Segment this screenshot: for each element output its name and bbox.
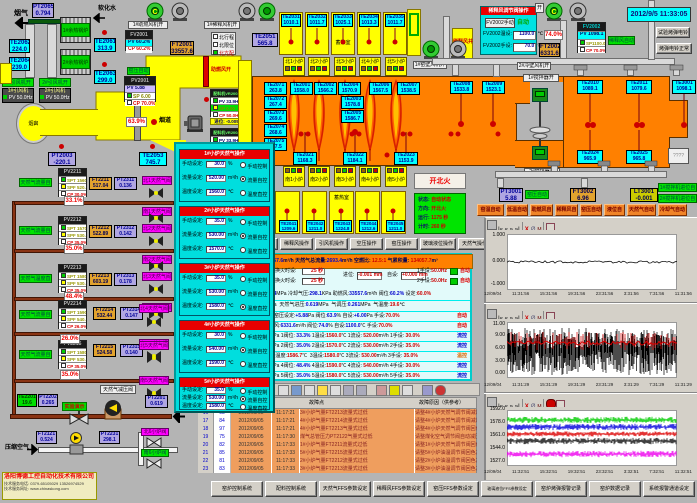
svg-text:C: C [152,9,157,16]
svg-text:C: C [551,9,556,16]
